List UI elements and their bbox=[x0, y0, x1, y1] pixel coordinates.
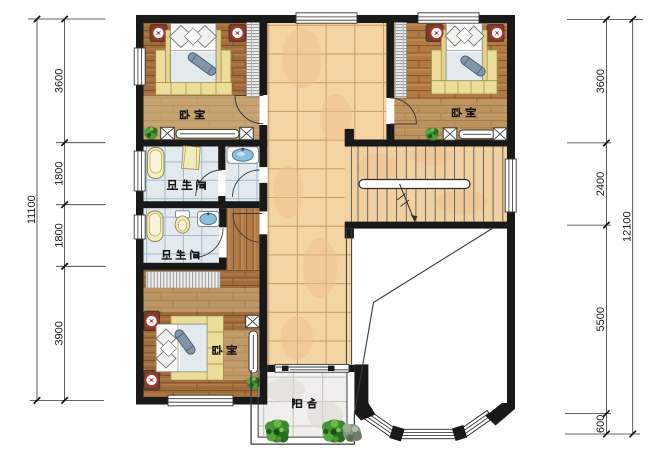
svg-text:12100: 12100 bbox=[622, 211, 634, 242]
svg-text:5500: 5500 bbox=[595, 307, 607, 331]
svg-text:1800: 1800 bbox=[54, 223, 66, 247]
svg-text:3900: 3900 bbox=[54, 321, 66, 345]
svg-text:11100: 11100 bbox=[26, 195, 38, 224]
svg-text:2400: 2400 bbox=[595, 172, 607, 196]
svg-text:600: 600 bbox=[595, 415, 607, 433]
svg-text:3600: 3600 bbox=[54, 69, 66, 93]
svg-text:3600: 3600 bbox=[595, 69, 607, 93]
svg-text:1800: 1800 bbox=[54, 161, 66, 185]
